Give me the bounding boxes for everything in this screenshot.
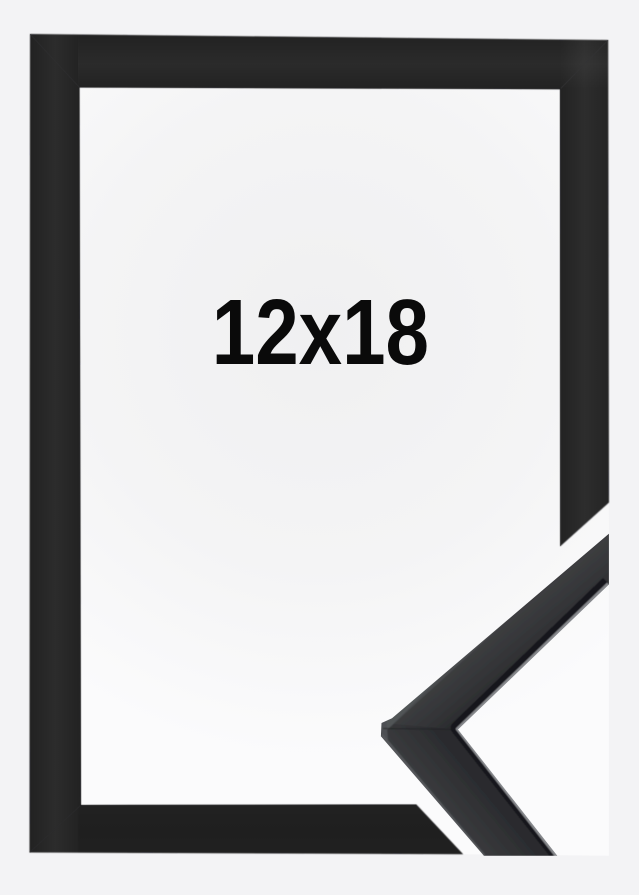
svg-text:12x18: 12x18 — [212, 281, 429, 385]
